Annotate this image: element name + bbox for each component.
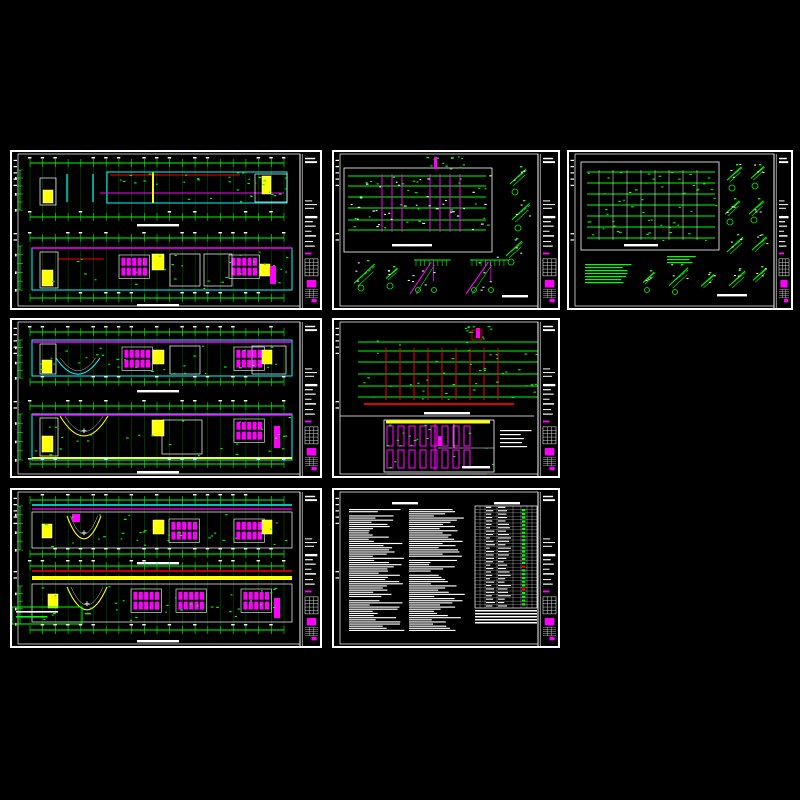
smudge-shape — [137, 304, 179, 306]
table-shape — [475, 506, 537, 608]
yrect-shape — [153, 350, 164, 364]
arcd-shape — [60, 416, 108, 436]
vdim-shape — [15, 170, 23, 212]
hatch-shape — [119, 255, 149, 278]
iso-shape — [729, 268, 746, 288]
mrect-shape — [270, 266, 276, 284]
sheet-1-drawing — [12, 152, 320, 308]
circle-shape — [729, 185, 735, 191]
textcol-shape — [409, 509, 465, 631]
circle-shape — [645, 288, 650, 293]
yrect-shape — [42, 524, 52, 538]
dots-shape — [363, 340, 538, 399]
mrect-shape — [434, 157, 437, 169]
rect-shape — [170, 346, 200, 374]
sheet-1-floor-plans-roof-and-upper — [10, 150, 322, 310]
stalls-shape — [387, 450, 470, 468]
title-block — [300, 492, 318, 646]
title-block — [538, 322, 556, 476]
title-block — [300, 322, 318, 476]
hatch-shape — [241, 589, 271, 612]
smudge-shape — [494, 502, 520, 504]
dots-shape — [587, 171, 717, 241]
rect-shape — [107, 172, 287, 203]
mrect-shape — [72, 514, 80, 522]
smudge-shape — [424, 412, 470, 414]
rect-shape — [162, 420, 202, 454]
smudge-shape — [137, 224, 179, 226]
riser3-shape — [408, 260, 451, 294]
sheet-6-drawing — [12, 490, 320, 646]
textcol-shape — [349, 509, 404, 631]
mrect-shape — [274, 426, 280, 448]
hset-shape — [358, 342, 538, 397]
circle-shape — [751, 217, 757, 223]
tfoot-shape — [475, 610, 537, 624]
yrect-shape — [153, 520, 164, 534]
yrect-shape — [42, 436, 53, 452]
title-block — [538, 154, 556, 308]
yrect-shape — [48, 594, 58, 608]
yrect-shape — [43, 190, 53, 203]
sheet-2-drainage-riser-diagram — [332, 150, 560, 310]
iso-shape — [753, 266, 767, 282]
iso-shape — [512, 200, 531, 222]
iso-shape — [643, 270, 655, 284]
rect-shape — [581, 162, 719, 250]
iso-shape — [510, 166, 527, 186]
iso-shape — [354, 260, 375, 286]
title-block — [538, 492, 556, 646]
sheet-3-water-supply-riser-diagram — [567, 150, 793, 310]
vdim-shape — [15, 414, 23, 462]
textlines-shape — [585, 264, 631, 283]
sheet-5-hydrant-diagram-and-stall-detail — [332, 318, 560, 478]
title-block — [300, 154, 318, 308]
dots-shape — [351, 175, 492, 230]
circle-shape — [727, 219, 733, 225]
circle-shape — [472, 288, 477, 293]
vset-shape — [382, 174, 460, 232]
rect-shape — [344, 168, 492, 252]
yrect-shape — [260, 264, 270, 276]
vdim-shape — [15, 586, 23, 626]
smudge-shape — [717, 294, 747, 296]
smudge-shape — [137, 640, 179, 642]
iso-shape — [749, 198, 764, 216]
vdim-shape — [15, 506, 23, 552]
stalls-shape — [387, 426, 470, 446]
smudge-shape — [502, 295, 528, 297]
mrect-shape — [476, 328, 480, 338]
hatch-shape — [234, 519, 264, 542]
sheet-2-drawing — [334, 152, 558, 308]
iso-shape — [727, 234, 744, 254]
dots-shape — [353, 177, 489, 229]
iso-shape — [386, 266, 398, 280]
hgrid-shape — [30, 548, 284, 558]
yrect-shape — [42, 360, 52, 373]
rect-shape — [170, 254, 200, 286]
circle-shape — [416, 288, 421, 293]
sheet-7-drawing — [334, 490, 558, 646]
iso-shape — [751, 164, 765, 180]
iso-shape — [669, 264, 688, 288]
hatch-shape — [234, 419, 264, 442]
circle-shape — [752, 183, 758, 189]
cad-montage-canvas — [0, 0, 800, 800]
hatch-shape — [131, 589, 161, 612]
iso-shape — [506, 238, 523, 258]
legend-shape — [12, 607, 91, 624]
smudge-shape — [392, 502, 418, 504]
yrect-shape — [152, 254, 164, 270]
smudge-shape — [462, 466, 490, 468]
hatch-shape — [229, 255, 259, 278]
circle-shape — [508, 259, 514, 265]
hgrid-shape — [28, 211, 284, 221]
yrect-shape — [262, 350, 272, 364]
iso-shape — [701, 272, 716, 288]
smudge-shape — [137, 562, 179, 564]
hset-shape — [348, 176, 486, 230]
iso-shape — [752, 234, 768, 252]
vdim-shape — [15, 340, 23, 380]
arcd-shape — [67, 587, 107, 610]
iso-shape — [727, 164, 742, 182]
sheet-4-floor-plans-middle — [10, 318, 322, 478]
circle-shape — [515, 225, 521, 231]
smudge-shape — [137, 390, 179, 392]
sheet-6-floor-plans-ground — [10, 488, 322, 648]
hatch-shape — [234, 347, 264, 370]
smudge-shape — [624, 244, 658, 246]
dots-shape — [426, 156, 465, 169]
vdim-shape — [15, 246, 23, 292]
textlines-shape — [667, 256, 696, 263]
hgrid-shape — [30, 376, 285, 386]
circle-shape — [512, 189, 518, 195]
yrect-shape — [152, 420, 164, 436]
sheet-7-design-notes-and-equipment-table — [332, 488, 560, 648]
circle-shape — [432, 288, 437, 293]
circle-shape — [387, 283, 393, 289]
smudge-shape — [392, 244, 432, 246]
textlines-shape — [500, 430, 532, 447]
rect-shape — [32, 584, 292, 622]
mrect-shape — [438, 436, 442, 446]
circle-shape — [673, 290, 678, 295]
hatch-shape — [176, 589, 206, 612]
yrect-shape — [262, 520, 272, 534]
iso-shape — [725, 198, 740, 216]
sheet-4-drawing — [12, 320, 320, 476]
yrect-shape — [42, 270, 53, 286]
circle-shape — [489, 288, 494, 293]
circle-shape — [358, 285, 364, 291]
title-block — [774, 154, 789, 308]
smudge-shape — [137, 471, 179, 473]
sheet-5-drawing — [334, 320, 558, 476]
sheet-3-drawing — [569, 152, 791, 308]
hset-shape — [587, 172, 715, 238]
hatch-shape — [169, 519, 199, 542]
